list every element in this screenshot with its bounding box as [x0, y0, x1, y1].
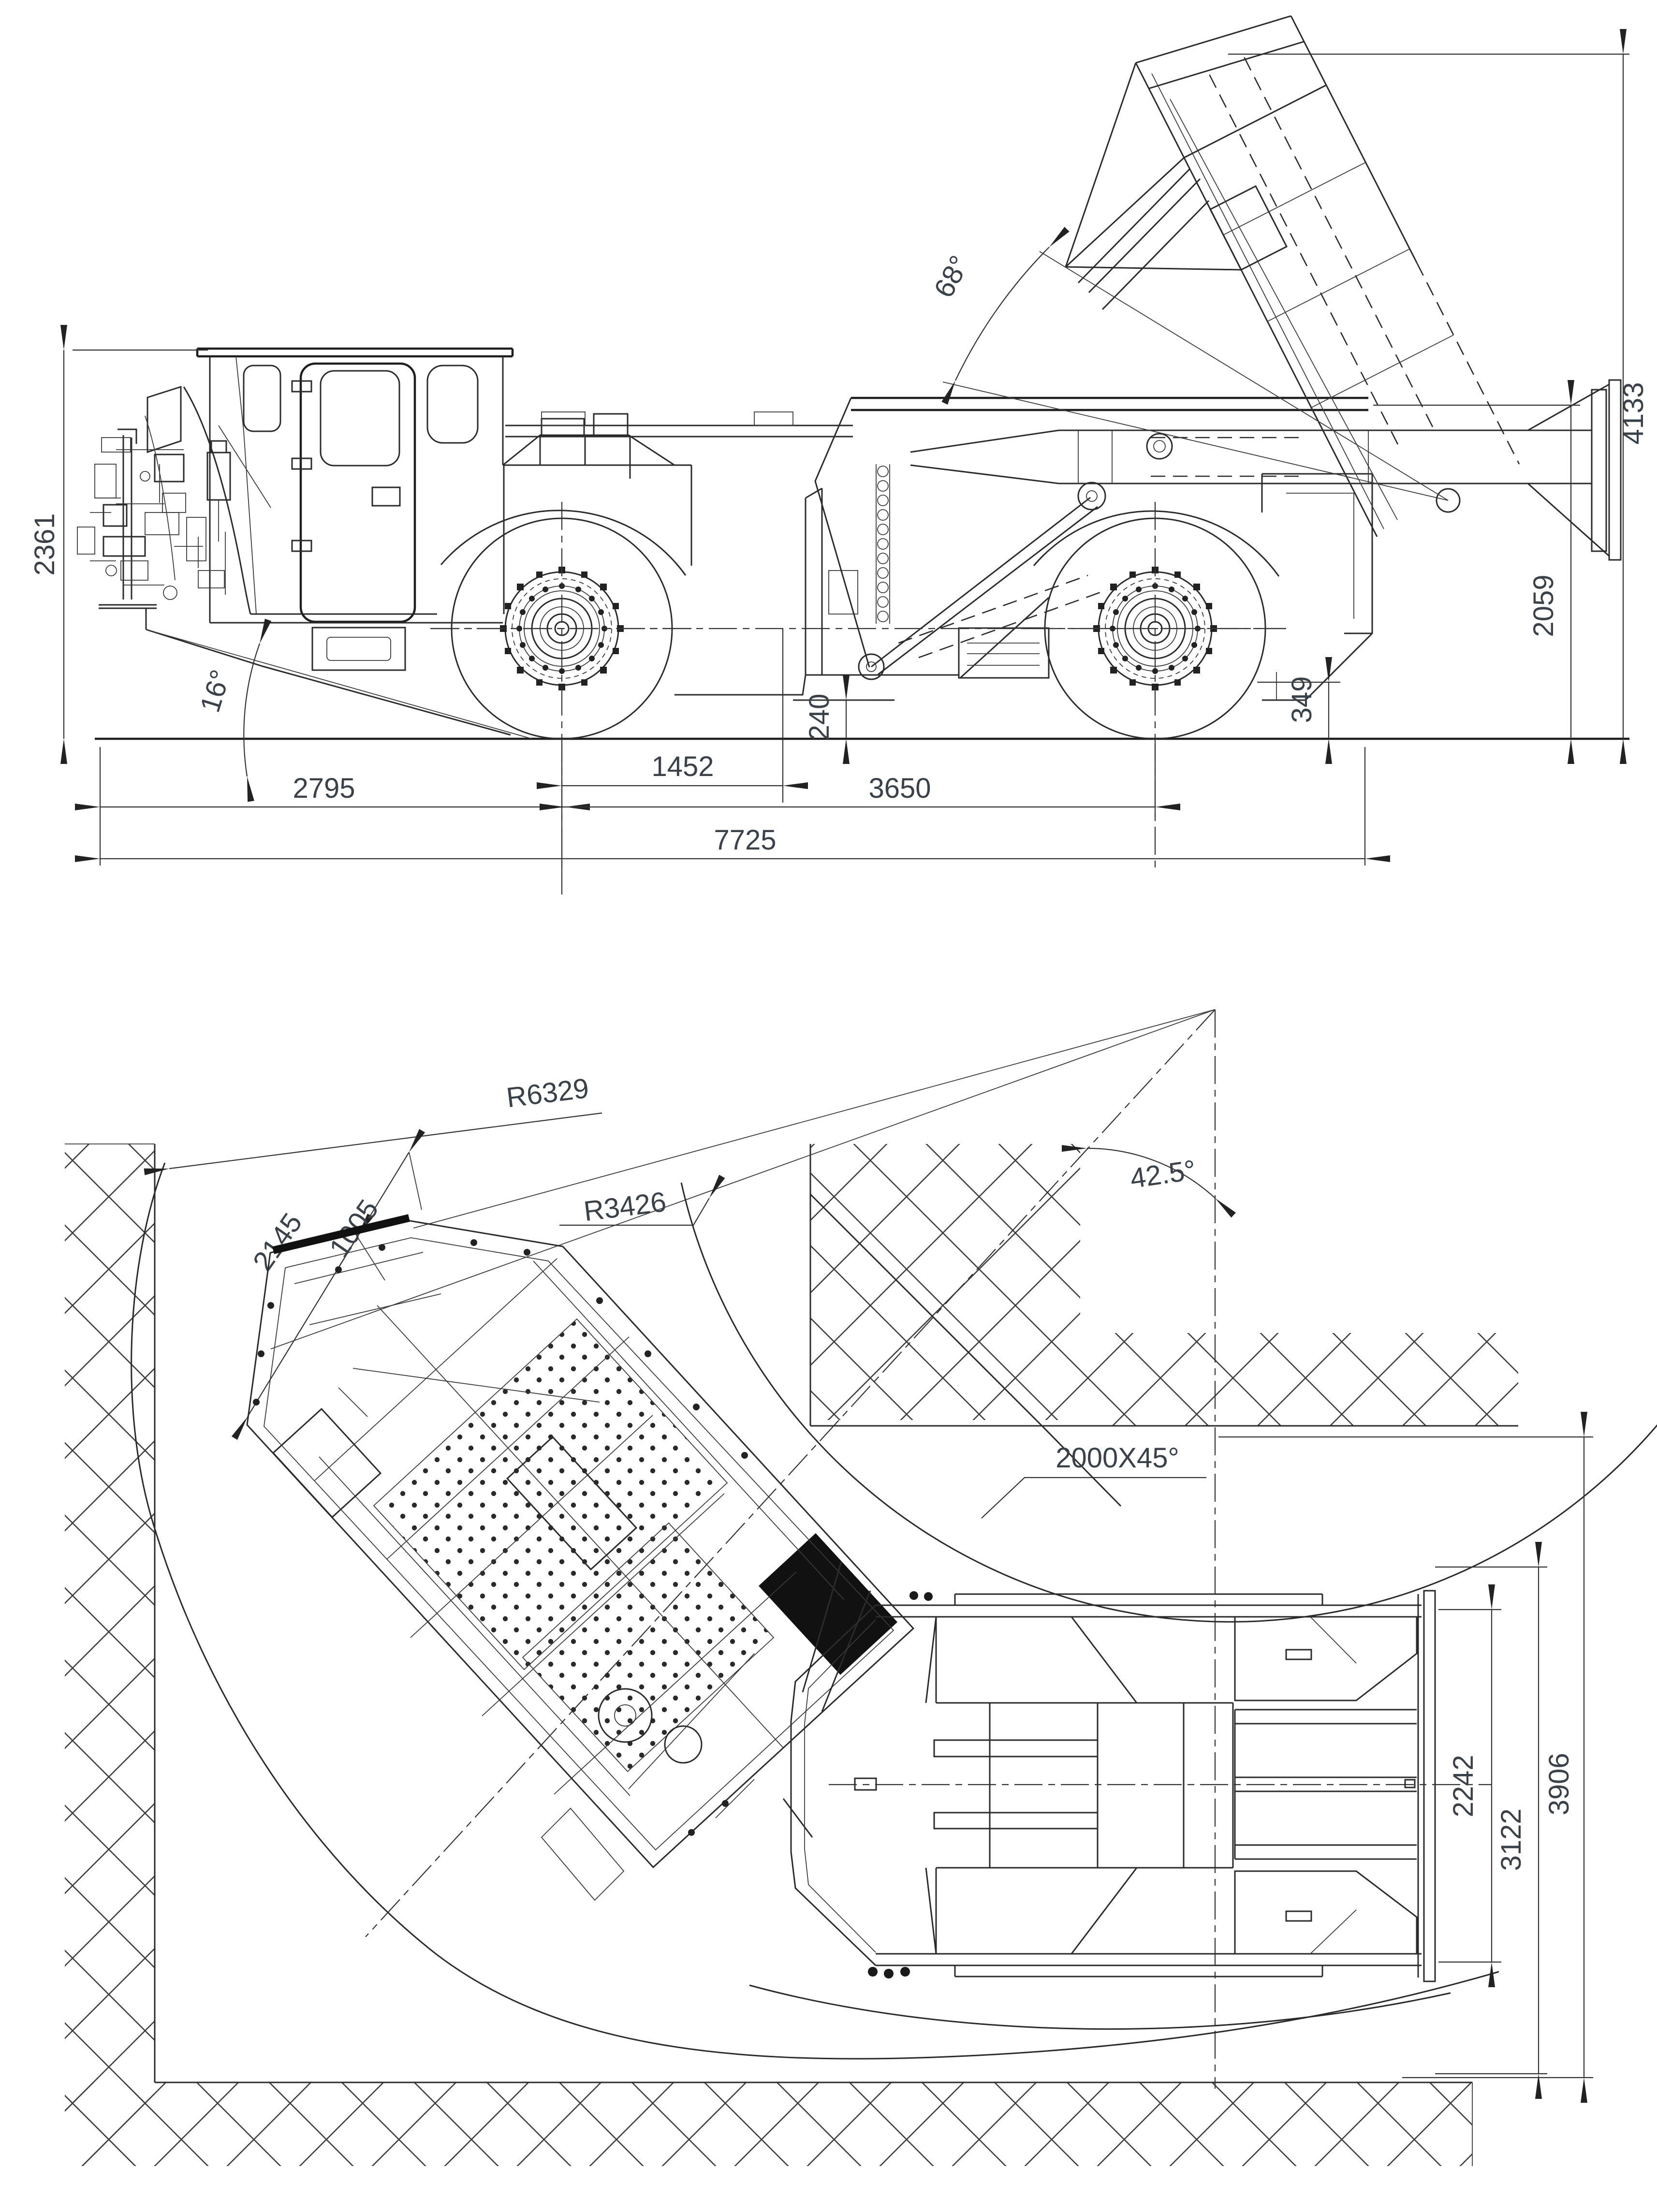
- svg-text:349: 349: [1286, 676, 1318, 723]
- svg-text:4133: 4133: [1618, 382, 1649, 444]
- svg-text:2242: 2242: [1448, 1755, 1479, 1817]
- svg-text:240: 240: [804, 694, 835, 741]
- svg-text:3122: 3122: [1496, 1808, 1527, 1871]
- svg-text:1452: 1452: [651, 751, 714, 782]
- svg-text:3906: 3906: [1543, 1753, 1575, 1815]
- svg-text:2795: 2795: [293, 773, 355, 804]
- svg-text:7725: 7725: [714, 824, 776, 856]
- svg-text:2059: 2059: [1528, 574, 1559, 637]
- svg-text:3650: 3650: [868, 773, 931, 804]
- svg-text:2361: 2361: [29, 513, 60, 575]
- svg-text:2000X45°: 2000X45°: [1056, 1442, 1179, 1474]
